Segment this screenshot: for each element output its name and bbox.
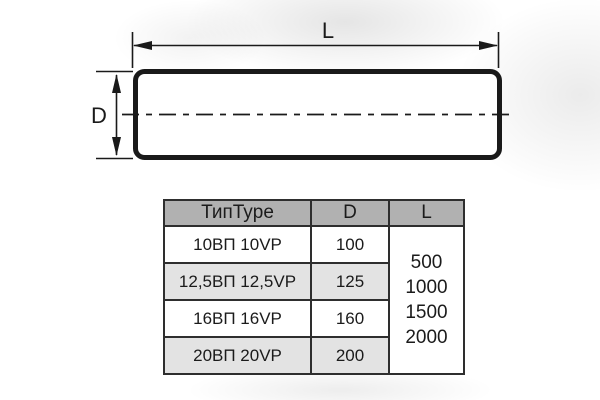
l-value: 2000: [405, 325, 447, 350]
table-cell-d: 125: [312, 264, 388, 299]
table-cell-d: 200: [312, 338, 388, 373]
l-value: 1500: [405, 300, 447, 325]
length-label: L: [322, 18, 334, 43]
arrowhead-left-icon: [133, 41, 152, 50]
table-cell-d: 160: [312, 301, 388, 336]
arrowhead-right-icon: [479, 41, 498, 50]
arrowhead-up-icon: [112, 74, 121, 93]
table-cell-type: 10ВП 10VP: [165, 227, 310, 262]
diameter-label: D: [91, 103, 107, 128]
table-cell-type: 12,5ВП 12,5VP: [165, 264, 310, 299]
length-dimension: [133, 32, 499, 68]
table-cell-d: 100: [312, 227, 388, 262]
table-cell-l-merged: 500 1000 1500 2000: [390, 227, 463, 373]
l-value: 1000: [405, 275, 447, 300]
arrowhead-down-icon: [112, 137, 121, 156]
spec-table: ТипType D L 10ВП 10VP 100 500 1000 1500 …: [163, 199, 465, 375]
table-header-d: D: [312, 201, 388, 225]
l-value: 500: [411, 250, 443, 275]
table-cell-type: 16ВП 16VP: [165, 301, 310, 336]
table-cell-type: 20ВП 20VP: [165, 338, 310, 373]
table-header-type: ТипType: [165, 201, 310, 225]
diagram-canvas: L D: [0, 0, 600, 200]
table-header-l: L: [390, 201, 463, 225]
